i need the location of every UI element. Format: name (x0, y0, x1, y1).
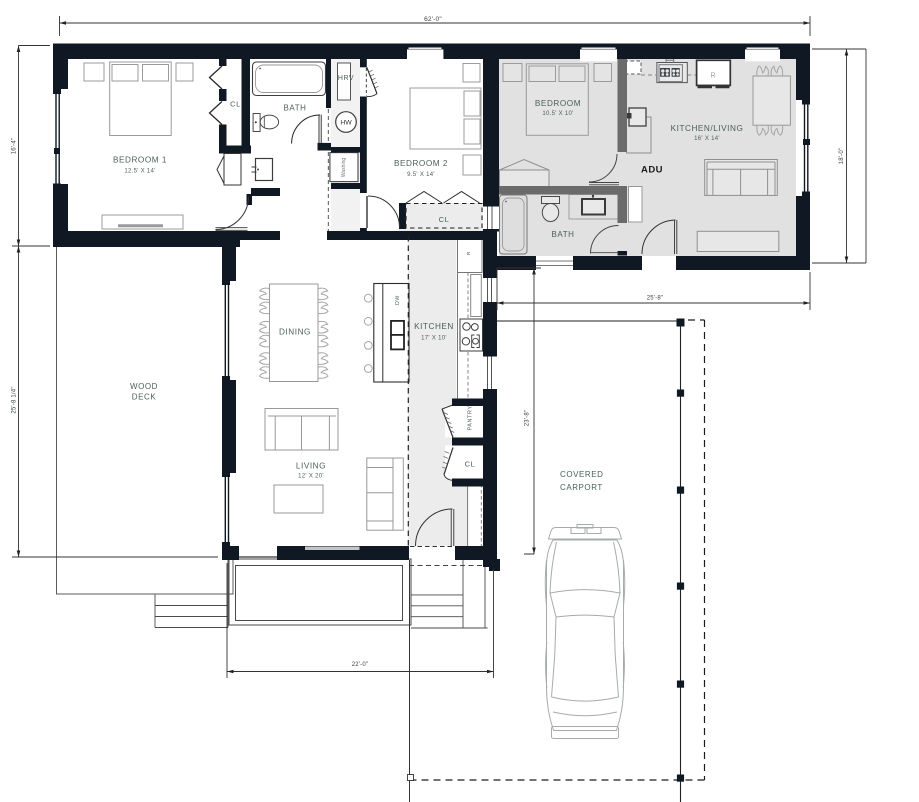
svg-text:CL: CL (465, 460, 476, 469)
svg-text:Washing: Washing (341, 158, 347, 177)
svg-text:18'-0": 18'-0" (839, 148, 845, 164)
svg-text:23'-8": 23'-8" (525, 410, 531, 426)
svg-text:LIVING: LIVING (296, 462, 326, 471)
svg-text:HRV: HRV (338, 75, 354, 82)
svg-text:BEDROOM: BEDROOM (535, 99, 581, 108)
svg-text:16' X 14': 16' X 14' (694, 136, 720, 142)
svg-text:BEDROOM 2: BEDROOM 2 (394, 159, 448, 168)
svg-text:DINING: DINING (279, 328, 311, 337)
svg-text:9.5' X 14': 9.5' X 14' (407, 172, 435, 178)
svg-text:12' X 20': 12' X 20' (298, 474, 324, 480)
svg-text:KITCHEN: KITCHEN (414, 322, 454, 331)
svg-text:CL: CL (230, 100, 241, 109)
svg-text:22'-0": 22'-0" (352, 662, 368, 668)
svg-text:CL: CL (439, 215, 450, 224)
svg-text:10.5' X 10': 10.5' X 10' (542, 111, 573, 117)
svg-text:BATH: BATH (284, 104, 307, 113)
svg-text:COVERED: COVERED (560, 470, 603, 479)
svg-text:HW: HW (340, 120, 352, 127)
svg-text:16'-4": 16'-4" (12, 138, 18, 154)
svg-text:DW: DW (395, 295, 401, 305)
svg-text:25'-8 1/4": 25'-8 1/4" (12, 386, 18, 413)
svg-text:BATH: BATH (552, 230, 575, 239)
svg-text:DECK: DECK (132, 393, 157, 402)
svg-text:CARPORT: CARPORT (560, 483, 603, 492)
svg-text:KITCHEN/LIVING: KITCHEN/LIVING (671, 124, 744, 133)
svg-text:17' X 10': 17' X 10' (421, 336, 447, 342)
svg-text:12.5' X 14': 12.5' X 14' (124, 169, 155, 175)
svg-text:PANTRY: PANTRY (468, 405, 474, 430)
svg-text:BEDROOM 1: BEDROOM 1 (113, 156, 167, 165)
svg-text:25'-8": 25'-8" (647, 296, 663, 302)
svg-text:WOOD: WOOD (130, 382, 158, 391)
svg-text:ADU: ADU (641, 165, 663, 176)
svg-text:62'-0": 62'-0" (424, 16, 442, 23)
svg-text:R: R (466, 251, 472, 255)
svg-text:R: R (710, 73, 715, 80)
